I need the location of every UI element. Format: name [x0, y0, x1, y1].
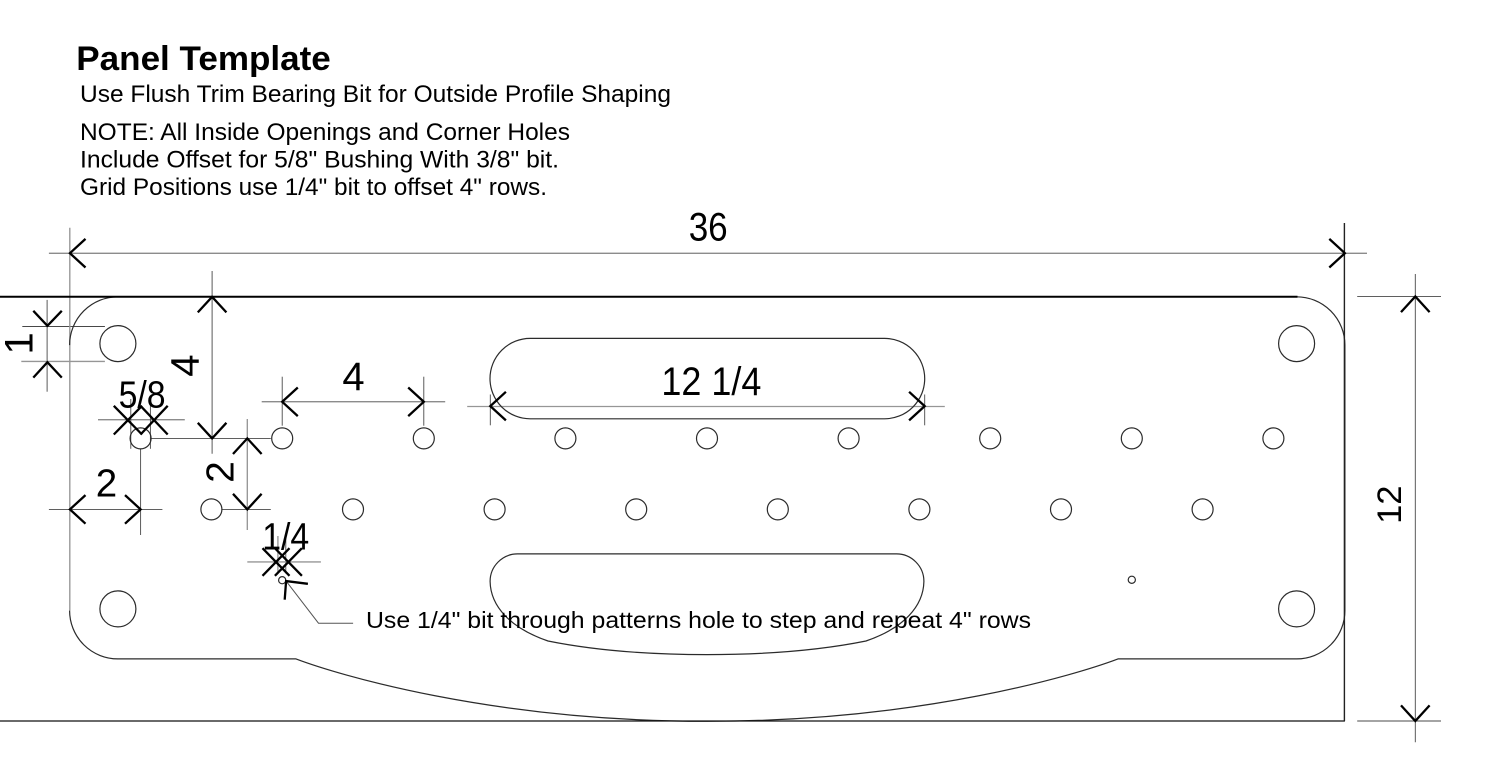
- svg-text:36: 36: [689, 206, 728, 250]
- svg-text:4: 4: [342, 355, 364, 399]
- svg-text:Include Offset for 5/8" Bushin: Include Offset for 5/8" Bushing With 3/8…: [80, 147, 559, 174]
- svg-text:2: 2: [200, 461, 243, 483]
- svg-text:NOTE: All Inside Openings and: NOTE: All Inside Openings and Corner Hol…: [80, 119, 570, 146]
- svg-text:1: 1: [0, 332, 41, 354]
- svg-text:12: 12: [1371, 486, 1409, 524]
- svg-text:Use 1/4" bit through patterns: Use 1/4" bit through patterns hole to st…: [366, 607, 1031, 633]
- svg-text:Panel Template: Panel Template: [76, 40, 331, 78]
- svg-text:4: 4: [164, 354, 208, 376]
- svg-text:2: 2: [96, 462, 117, 505]
- svg-text:Use Flush Trim Bearing Bit for: Use Flush Trim Bearing Bit for Outside P…: [80, 81, 671, 108]
- svg-text:Grid Positions use 1/4" bit to: Grid Positions use 1/4" bit to offset 4"…: [80, 174, 547, 201]
- svg-text:1/4: 1/4: [262, 516, 309, 558]
- svg-text:12 1/4: 12 1/4: [661, 360, 761, 404]
- svg-text:5/8: 5/8: [119, 374, 166, 416]
